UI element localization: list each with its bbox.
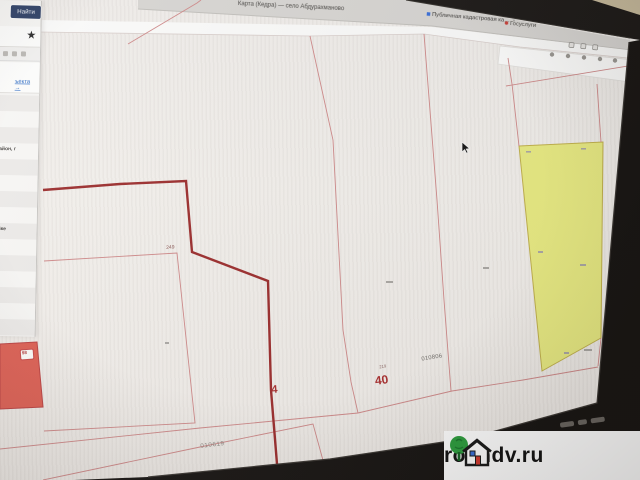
- watermark: rosndv.ru: [444, 431, 640, 480]
- rosndv-logo-icon: [444, 431, 496, 471]
- monitor-photo: Найти ★ ъекта → айон, г йке К: [0, 0, 640, 480]
- monitor-bezel: [0, 0, 640, 480]
